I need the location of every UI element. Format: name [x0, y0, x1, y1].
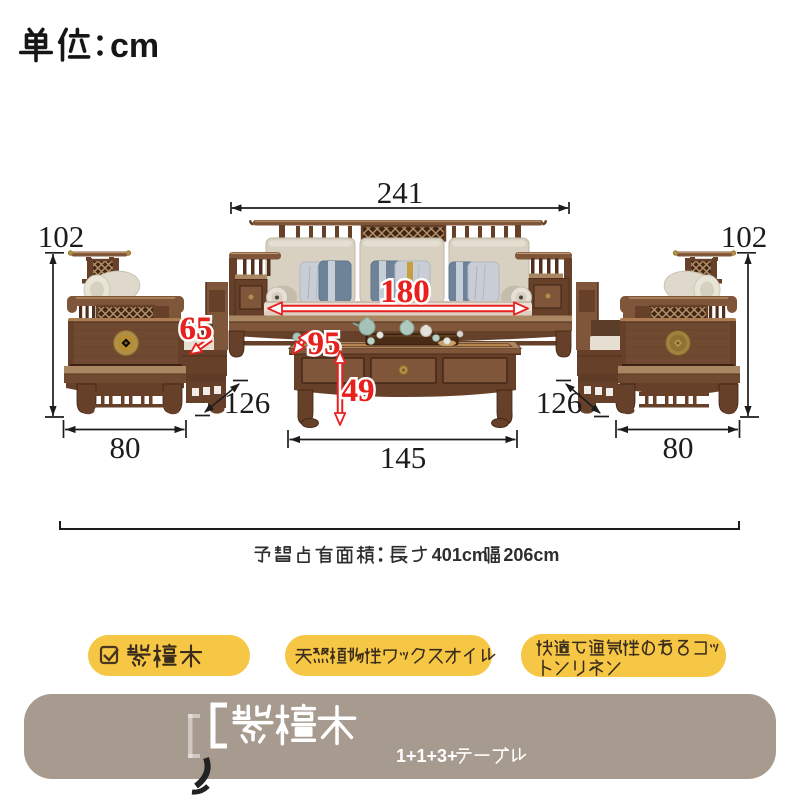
svg-text:180: 180	[380, 274, 430, 310]
svg-text:80: 80	[663, 430, 694, 465]
svg-text:401cm: 401cm	[432, 545, 488, 565]
svg-text:1+1+3+: 1+1+3+	[396, 746, 458, 766]
svg-text:126: 126	[224, 385, 271, 420]
svg-text:145: 145	[380, 440, 427, 475]
svg-text:206cm: 206cm	[503, 545, 559, 565]
svg-text:cm: cm	[110, 27, 159, 65]
svg-text:95: 95	[308, 326, 341, 362]
svg-text:102: 102	[721, 219, 768, 254]
svg-text:126: 126	[536, 385, 583, 420]
svg-text:80: 80	[110, 430, 141, 465]
svg-text:102: 102	[38, 219, 85, 254]
svg-text:241: 241	[377, 175, 424, 210]
svg-text:49: 49	[342, 373, 375, 409]
svg-text:65: 65	[180, 311, 213, 347]
